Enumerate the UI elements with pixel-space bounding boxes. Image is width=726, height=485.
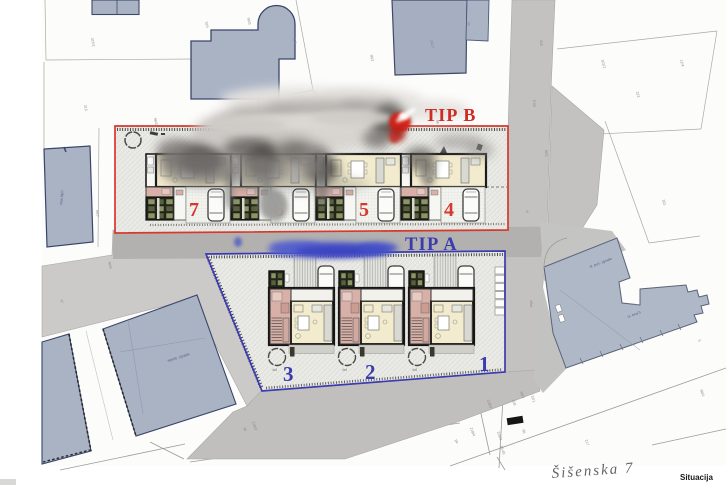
svg-text:4: 4 (444, 199, 454, 221)
svg-text:1: 1 (479, 352, 490, 376)
svg-text:4x6: 4x6 (272, 368, 277, 372)
svg-text:4x6: 4x6 (342, 368, 347, 372)
svg-text:315: 315 (539, 40, 543, 46)
svg-text:96: 96 (435, 119, 440, 124)
svg-text:7: 7 (189, 199, 199, 221)
svg-text:TIP B: TIP B (425, 105, 477, 125)
svg-text:96/1: 96/1 (544, 150, 548, 157)
svg-text:4x6: 4x6 (412, 368, 417, 372)
svg-text:96/7: 96/7 (95, 210, 100, 217)
svg-text:TIP A: TIP A (405, 235, 458, 255)
svg-text:96: 96 (466, 21, 471, 26)
svg-text:ul: ul (525, 210, 529, 213)
svg-text:2: 2 (365, 360, 376, 384)
svg-text:5: 5 (359, 199, 369, 221)
svg-text:ulica: ulica (529, 300, 533, 308)
svg-text:5.50: 5.50 (532, 100, 536, 107)
svg-text:3: 3 (283, 362, 294, 386)
svg-text:Situacija: Situacija (680, 473, 713, 482)
